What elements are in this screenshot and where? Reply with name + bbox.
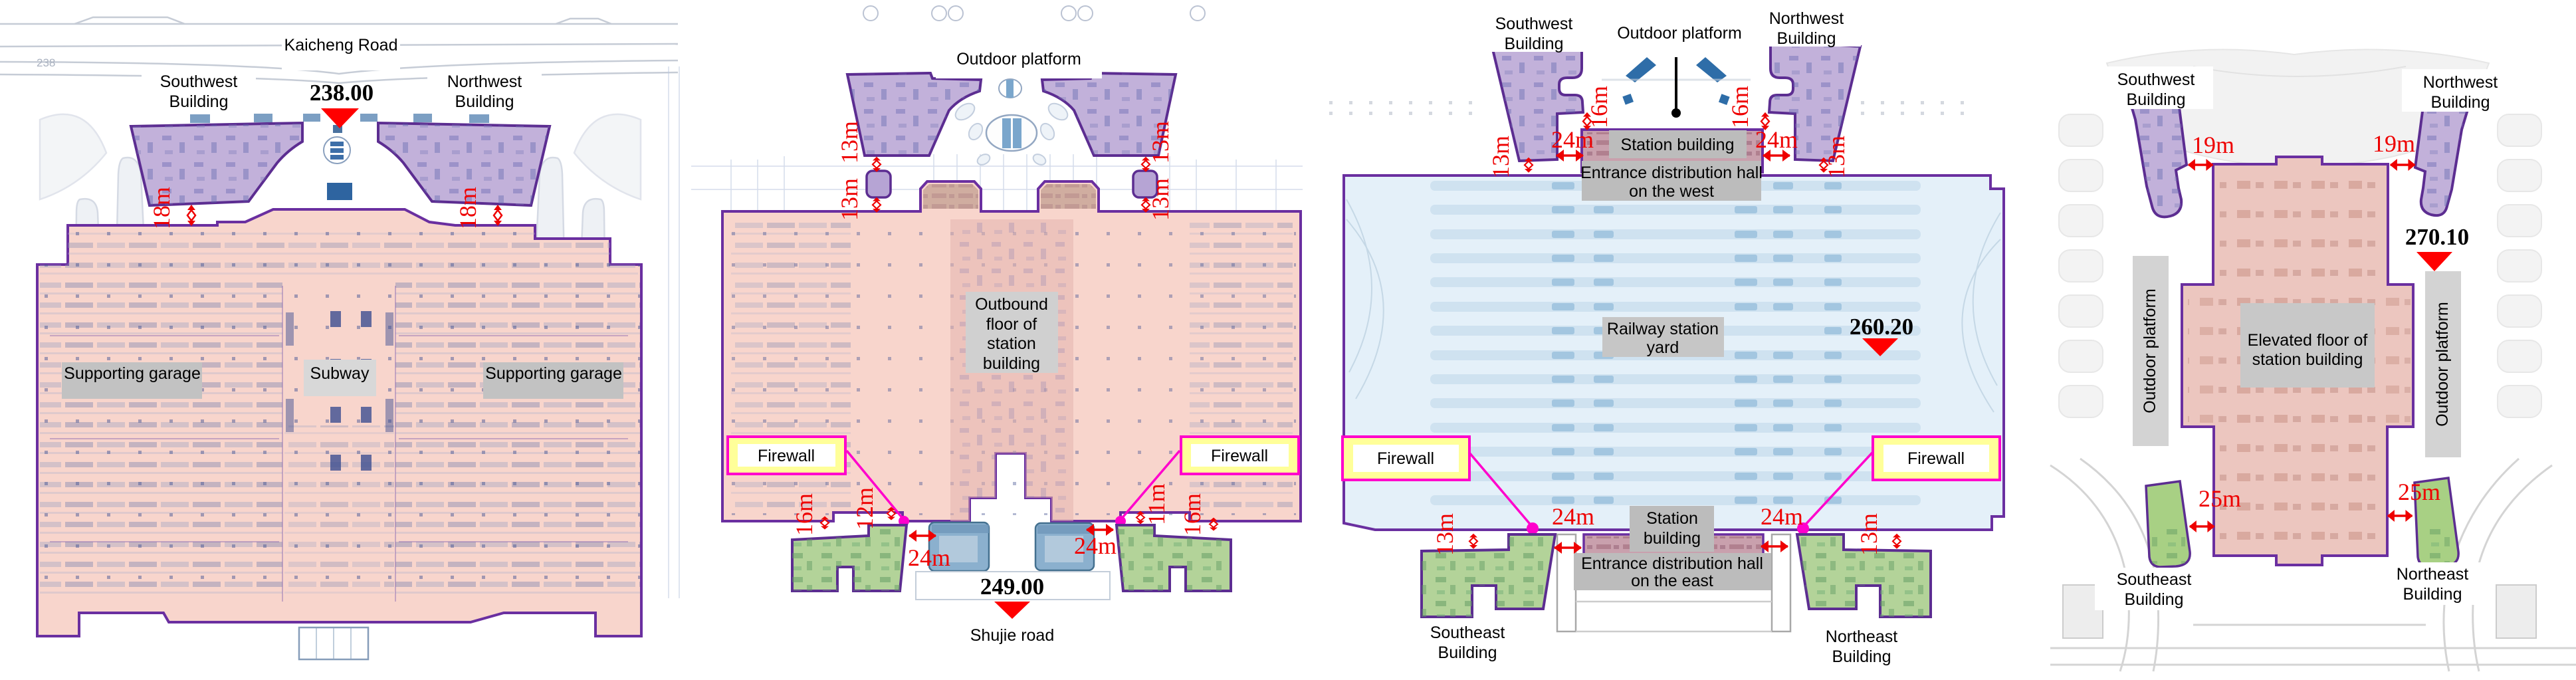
svg-text:24m: 24m — [1755, 126, 1798, 153]
svg-text:Railway station: Railway station — [1607, 320, 1719, 338]
svg-text:13m: 13m — [1147, 178, 1174, 221]
svg-text:24m: 24m — [1551, 126, 1594, 153]
svg-text:Kaicheng Road: Kaicheng Road — [284, 36, 398, 55]
svg-text:16m: 16m — [1179, 493, 1206, 536]
svg-text:24m: 24m — [1074, 532, 1117, 559]
svg-text:Firewall: Firewall — [1377, 449, 1434, 468]
svg-text:Shujie road: Shujie road — [970, 626, 1054, 645]
svg-text:260.20: 260.20 — [1850, 314, 1913, 340]
svg-text:Southwest: Southwest — [160, 72, 238, 91]
svg-text:Building: Building — [2431, 93, 2490, 112]
svg-text:Northwest: Northwest — [2423, 73, 2498, 92]
svg-text:Southeast: Southeast — [1430, 623, 1505, 642]
svg-text:238: 238 — [37, 57, 55, 69]
svg-text:Outdoor platform: Outdoor platform — [956, 50, 1081, 68]
svg-text:Outdoor platform: Outdoor platform — [2141, 288, 2159, 413]
svg-text:19m: 19m — [2192, 132, 2234, 158]
svg-text:16m: 16m — [791, 493, 817, 536]
svg-text:Supporting garage: Supporting garage — [485, 364, 622, 383]
svg-text:building: building — [1644, 529, 1701, 548]
svg-text:13m: 13m — [1487, 136, 1514, 178]
svg-text:Outdoor platform: Outdoor platform — [2433, 302, 2452, 427]
svg-text:25m: 25m — [2199, 485, 2241, 512]
svg-text:13m: 13m — [1823, 136, 1850, 178]
svg-text:270.10: 270.10 — [2405, 224, 2469, 250]
svg-text:Southwest: Southwest — [1495, 15, 1573, 33]
svg-text:25m: 25m — [2398, 479, 2440, 505]
svg-text:Station building: Station building — [1621, 136, 1735, 154]
svg-text:Outdoor platform: Outdoor platform — [1617, 24, 1742, 43]
svg-text:station building: station building — [2252, 350, 2363, 369]
svg-text:Northeast: Northeast — [1826, 627, 1897, 646]
svg-text:249.00: 249.00 — [980, 574, 1044, 600]
svg-text:Northeast: Northeast — [2397, 565, 2468, 584]
svg-text:Entrance distribution hall: Entrance distribution hall — [1581, 554, 1763, 573]
svg-text:Building: Building — [2127, 90, 2186, 109]
svg-text:Building: Building — [1505, 35, 1564, 53]
svg-text:24m: 24m — [1552, 503, 1594, 530]
svg-text:building: building — [983, 354, 1040, 373]
svg-text:16m: 16m — [1586, 86, 1612, 128]
svg-text:yard: yard — [1647, 338, 1679, 357]
svg-text:24m: 24m — [908, 544, 950, 571]
svg-text:Building: Building — [1832, 647, 1891, 666]
svg-text:on the west: on the west — [1629, 182, 1714, 201]
svg-text:Northwest: Northwest — [447, 72, 522, 91]
svg-text:13m: 13m — [1856, 513, 1882, 556]
svg-text:Firewall: Firewall — [1211, 447, 1268, 465]
svg-text:Firewall: Firewall — [758, 447, 815, 465]
svg-text:Building: Building — [169, 92, 229, 111]
svg-text:Building: Building — [1438, 643, 1497, 662]
svg-text:Building: Building — [455, 92, 514, 111]
svg-text:13m: 13m — [836, 121, 863, 164]
svg-text:18m: 18m — [148, 187, 175, 229]
svg-text:Elevated floor of: Elevated floor of — [2248, 331, 2368, 350]
svg-text:238.00: 238.00 — [310, 80, 374, 106]
svg-text:Northwest: Northwest — [1769, 9, 1844, 28]
svg-text:Outbound: Outbound — [975, 295, 1048, 314]
svg-text:16m: 16m — [1727, 86, 1753, 128]
svg-text:Southeast: Southeast — [2117, 570, 2192, 589]
svg-text:19m: 19m — [2373, 130, 2415, 157]
svg-text:Station: Station — [1646, 509, 1698, 528]
svg-text:Building: Building — [2403, 585, 2462, 604]
svg-text:on the east: on the east — [1631, 572, 1713, 590]
svg-text:floor of: floor of — [986, 315, 1037, 334]
svg-text:13m: 13m — [1432, 513, 1458, 556]
svg-text:Entrance distribution hall: Entrance distribution hall — [1580, 164, 1763, 182]
svg-text:18m: 18m — [455, 187, 481, 229]
svg-text:11m: 11m — [1143, 483, 1170, 525]
svg-text:Firewall: Firewall — [1907, 449, 1965, 468]
svg-text:13m: 13m — [1147, 121, 1174, 164]
svg-text:Subway: Subway — [310, 364, 370, 383]
svg-text:Southwest: Southwest — [2117, 70, 2195, 89]
svg-text:Supporting garage: Supporting garage — [64, 364, 201, 383]
svg-text:24m: 24m — [1761, 503, 1803, 530]
svg-text:station: station — [987, 334, 1036, 353]
svg-text:13m: 13m — [836, 178, 863, 221]
svg-text:Building: Building — [2125, 590, 2184, 609]
svg-text:Building: Building — [1777, 29, 1836, 48]
svg-text:12m: 12m — [851, 487, 878, 530]
